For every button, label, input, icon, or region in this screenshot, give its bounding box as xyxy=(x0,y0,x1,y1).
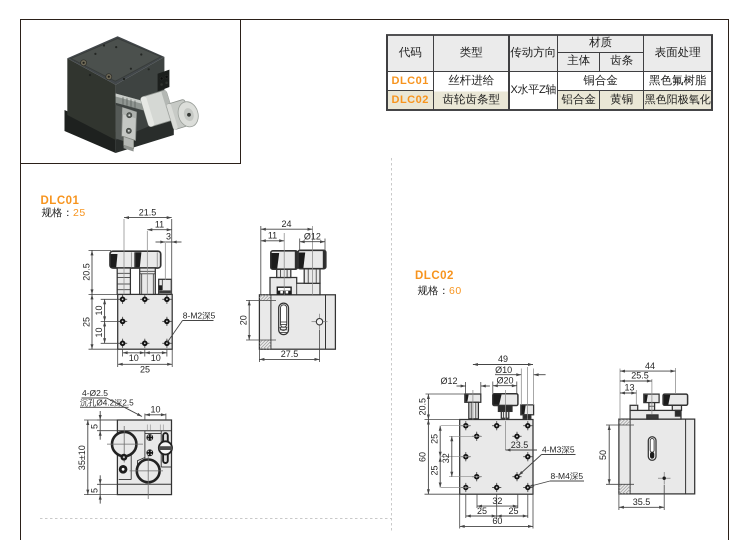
svg-text:25.5: 25.5 xyxy=(631,371,649,381)
svg-text:24: 24 xyxy=(281,219,291,229)
svg-text:32: 32 xyxy=(441,453,451,463)
svg-text:35±10: 35±10 xyxy=(77,445,87,470)
svg-text:8-M2深5: 8-M2深5 xyxy=(183,311,216,322)
svg-text:32: 32 xyxy=(492,496,502,506)
svg-text:3: 3 xyxy=(166,232,171,242)
svg-text:44: 44 xyxy=(645,361,655,371)
svg-text:11: 11 xyxy=(268,231,277,241)
svg-text:5: 5 xyxy=(89,424,99,429)
svg-text:23.5: 23.5 xyxy=(511,440,529,450)
svg-text:10: 10 xyxy=(150,404,160,414)
svg-text:4-M3深5: 4-M3深5 xyxy=(542,445,575,456)
svg-text:25: 25 xyxy=(429,434,439,444)
svg-text:25: 25 xyxy=(429,465,439,475)
svg-text:10: 10 xyxy=(94,305,104,315)
svg-text:4-Ø2.5: 4-Ø2.5 xyxy=(82,388,108,398)
svg-text:60: 60 xyxy=(492,516,502,526)
svg-text:49: 49 xyxy=(498,354,508,364)
svg-text:13: 13 xyxy=(624,383,634,393)
svg-text:10: 10 xyxy=(94,327,104,337)
svg-text:10: 10 xyxy=(151,353,161,363)
svg-text:21.5: 21.5 xyxy=(139,208,157,218)
svg-text:25: 25 xyxy=(477,506,487,516)
svg-text:20: 20 xyxy=(239,315,249,325)
svg-text:Ø10: Ø10 xyxy=(495,365,512,375)
svg-text:25: 25 xyxy=(508,506,518,516)
svg-text:Ø12: Ø12 xyxy=(304,231,321,241)
svg-text:50: 50 xyxy=(598,450,608,460)
svg-text:11: 11 xyxy=(155,220,164,230)
svg-text:Ø12: Ø12 xyxy=(440,376,457,386)
svg-text:Ø20: Ø20 xyxy=(496,375,513,385)
svg-text:8-M4深5: 8-M4深5 xyxy=(551,471,584,482)
svg-text:35.5: 35.5 xyxy=(633,497,651,507)
svg-text:20.5: 20.5 xyxy=(82,263,92,281)
svg-text:27.5: 27.5 xyxy=(281,349,299,359)
svg-text:25: 25 xyxy=(140,364,150,374)
svg-text:25: 25 xyxy=(82,317,92,327)
svg-text:20.5: 20.5 xyxy=(417,398,427,416)
svg-text:5: 5 xyxy=(89,488,99,493)
svg-text:60: 60 xyxy=(417,452,427,462)
svg-text:10: 10 xyxy=(129,353,139,363)
